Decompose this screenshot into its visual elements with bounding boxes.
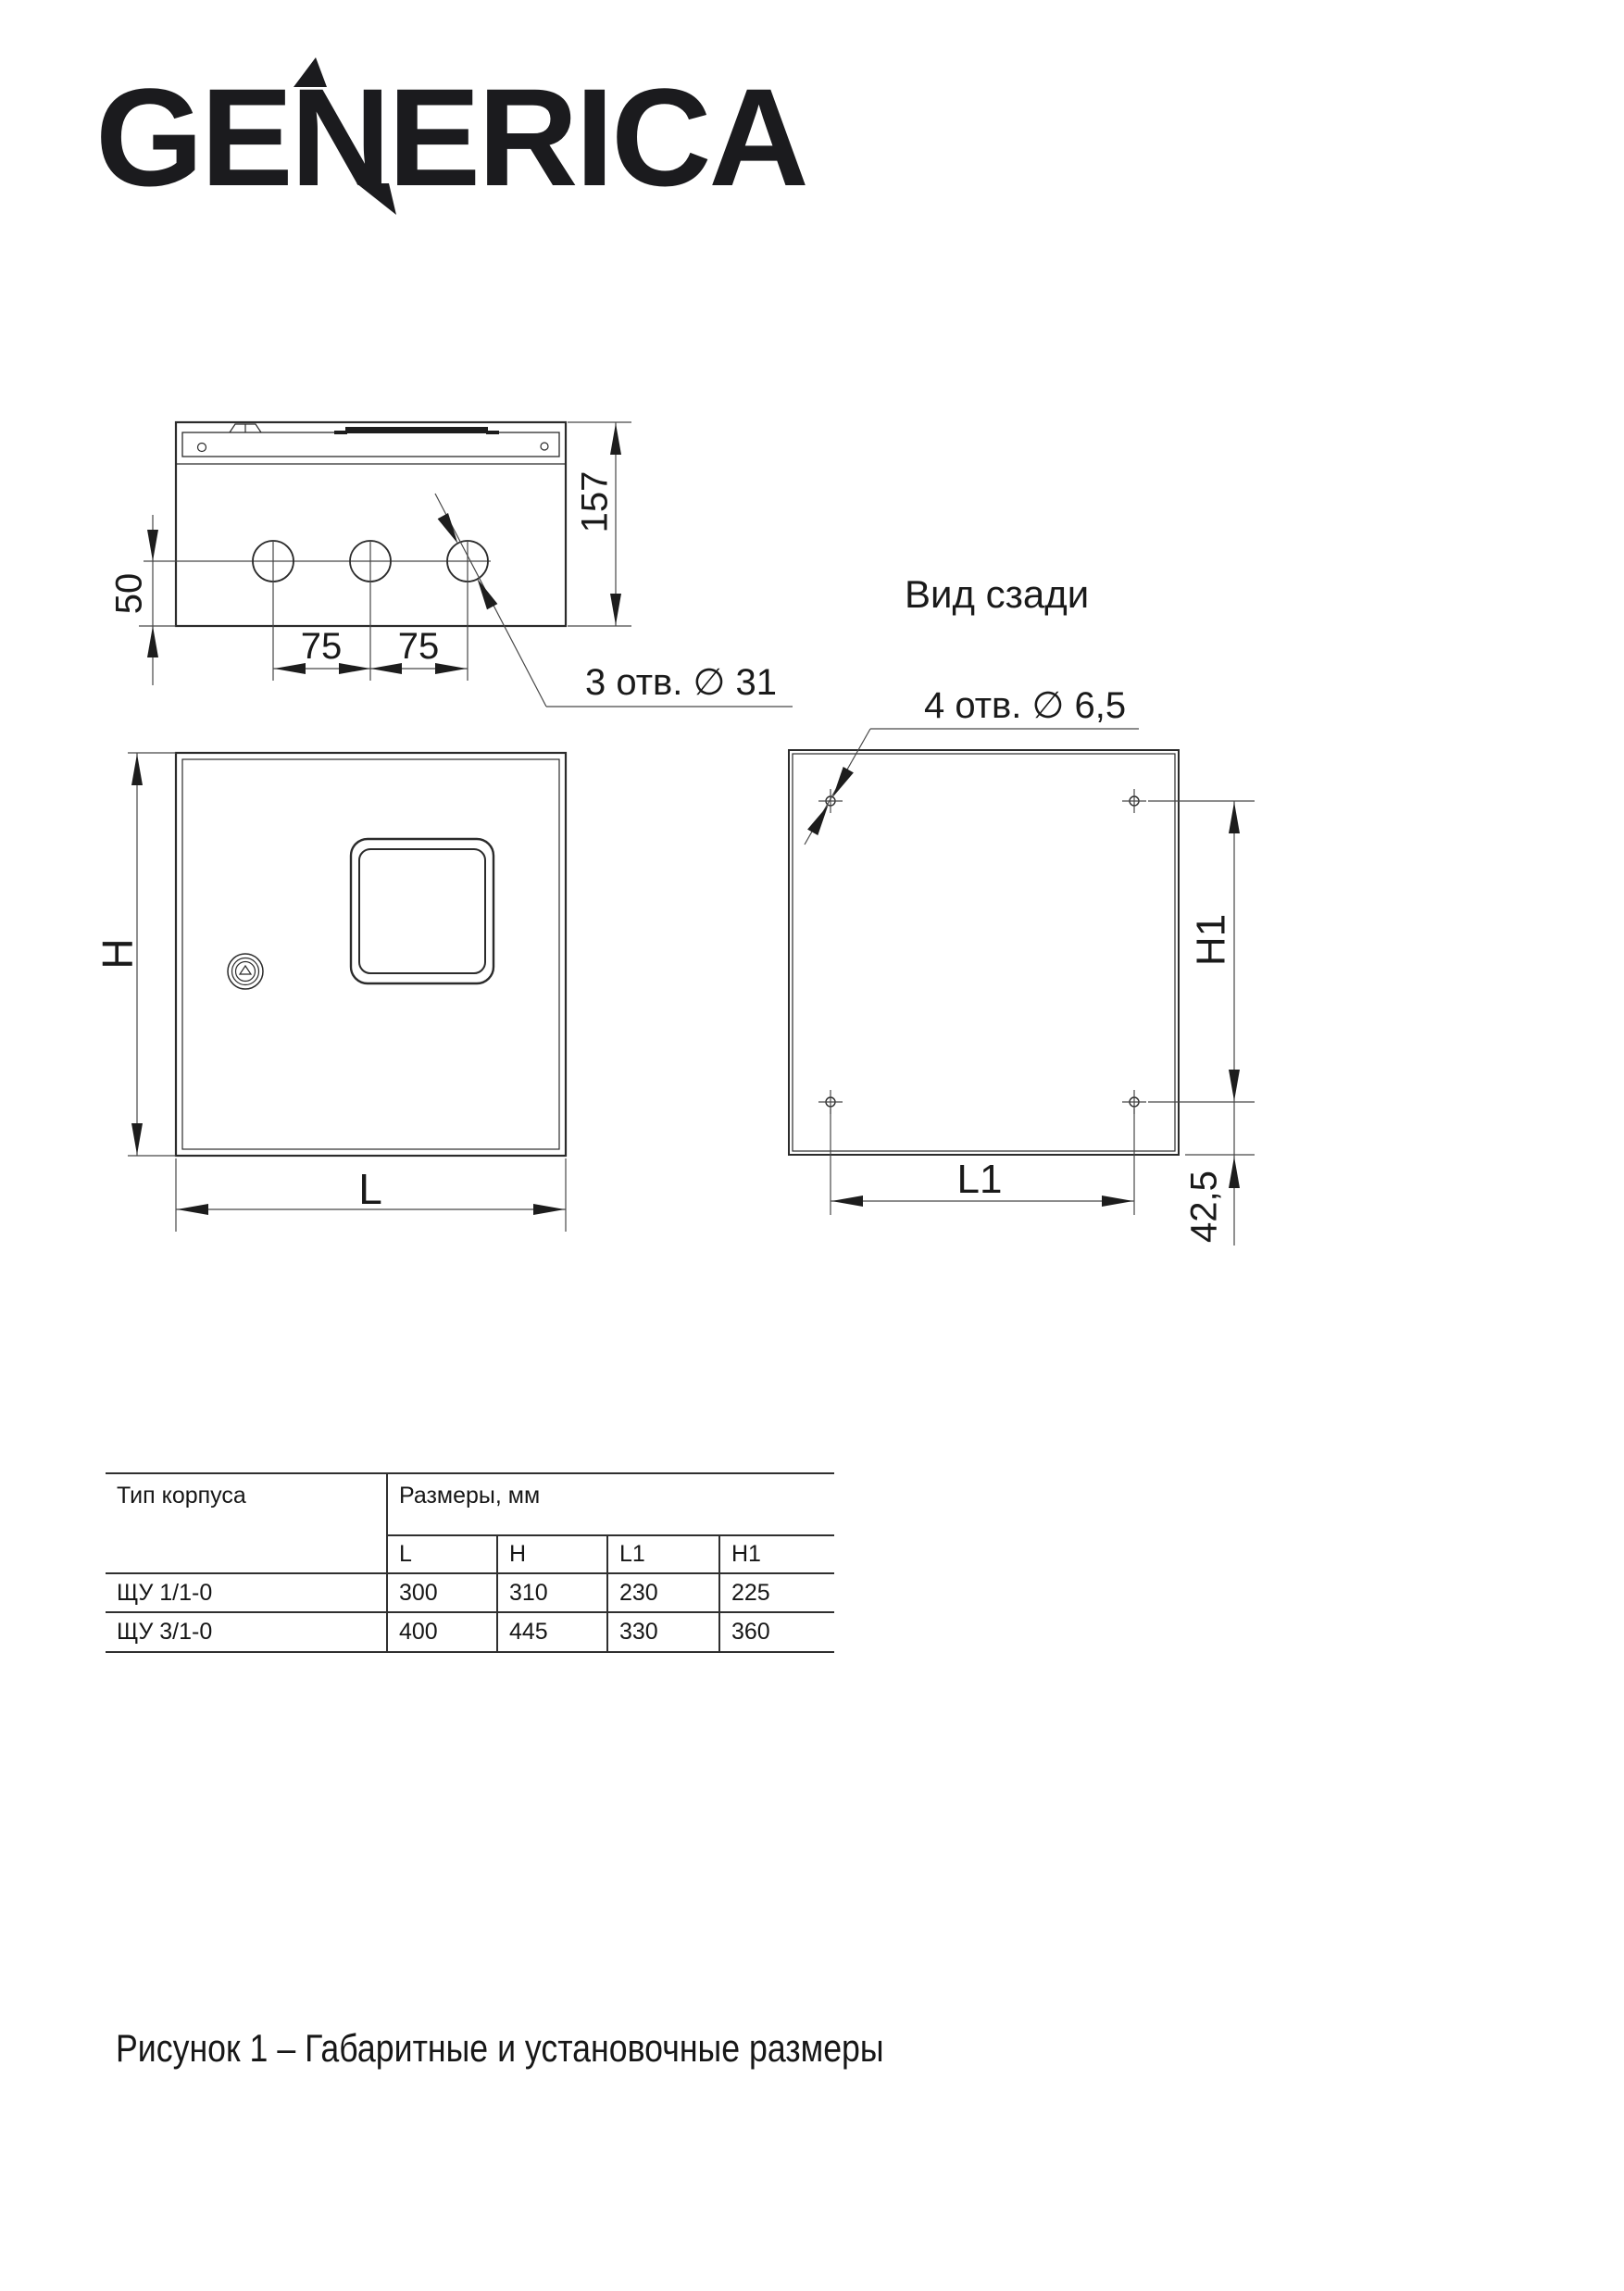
- arrow-right-icon: [533, 1204, 565, 1215]
- cell-L: 300: [387, 1573, 497, 1612]
- cell-L: 400: [387, 1612, 497, 1652]
- dim-L1-label: L1: [957, 1157, 1003, 1202]
- figure-caption: Рисунок 1 – Габаритные и установочные ра…: [116, 2029, 884, 2068]
- arrow-right-icon: [435, 663, 467, 674]
- rear-view-title: Вид сзади: [905, 572, 1089, 616]
- table-header-dims: Размеры, мм: [387, 1473, 834, 1535]
- technical-drawing: 50 75 75 157: [0, 0, 1624, 2291]
- handle-icon: [345, 427, 488, 433]
- front-view: H L: [94, 753, 566, 1232]
- cell-H: 310: [497, 1573, 607, 1612]
- arrow-right-icon: [339, 663, 370, 674]
- cell-H1: 225: [719, 1573, 834, 1612]
- dim-157: 157: [568, 422, 631, 626]
- arrow-up-icon: [131, 754, 143, 785]
- arrow-down-icon: [147, 530, 158, 561]
- table-subheader-L: L: [387, 1535, 497, 1573]
- cell-H: 445: [497, 1612, 607, 1652]
- arrow-icon: [833, 767, 854, 797]
- dim-L: L: [176, 1158, 566, 1232]
- dim-H1-label: H1: [1189, 914, 1234, 966]
- arrow-down-icon: [610, 594, 621, 625]
- handle-end-right: [486, 431, 499, 434]
- table-subheader-L1: L1: [607, 1535, 719, 1573]
- rear-view-body-inner: [793, 754, 1175, 1151]
- table-header-type: Тип корпуса: [106, 1473, 387, 1573]
- handle-end-left: [334, 431, 347, 434]
- dim-H-label: H: [94, 938, 142, 969]
- top-holes-label: 3 отв. ∅ 31: [585, 662, 777, 703]
- arrow-icon: [438, 513, 458, 544]
- mounting-hole: [1122, 789, 1146, 813]
- dim-75-right-label: 75: [398, 626, 440, 667]
- dim-157-label: 157: [575, 471, 616, 533]
- cell-H1: 360: [719, 1612, 834, 1652]
- dim-50: 50: [109, 515, 176, 685]
- rear-holes-label: 4 отв. ∅ 6,5: [924, 685, 1126, 726]
- dim-L-label: L: [358, 1165, 382, 1213]
- cell-type: ЩУ 3/1-0: [106, 1612, 387, 1652]
- hinge-icon: [230, 424, 261, 432]
- cell-L1: 230: [607, 1573, 719, 1612]
- arrow-up-icon: [147, 626, 158, 657]
- lock-ring: [236, 962, 256, 982]
- arrow-icon: [807, 805, 828, 835]
- cell-type: ЩУ 1/1-0: [106, 1573, 387, 1612]
- dimensions-table: Тип корпуса Размеры, мм L H L1 H1 ЩУ 1/1…: [106, 1472, 834, 1653]
- meter-window-outer: [351, 839, 493, 983]
- meter-window-inner: [359, 849, 485, 973]
- table-subheader-H: H: [497, 1535, 607, 1573]
- rear-view: Вид сзади: [789, 572, 1255, 1246]
- arrow-left-icon: [177, 1204, 208, 1215]
- arrow-up-icon: [610, 423, 621, 455]
- front-view-door: [182, 759, 559, 1149]
- arrow-left-icon: [831, 1196, 863, 1207]
- screw-icon: [541, 443, 548, 450]
- lock-icon: [228, 954, 263, 989]
- rear-view-body: [789, 750, 1179, 1155]
- arrow-down-icon: [1229, 1070, 1240, 1101]
- dim-50-label: 50: [109, 573, 150, 615]
- table-subheader-H1: H1: [719, 1535, 834, 1573]
- arrow-down-icon: [131, 1123, 143, 1155]
- cell-L1: 330: [607, 1612, 719, 1652]
- lock-keyhole: [240, 966, 251, 974]
- dim-42-5-label: 42,5: [1184, 1171, 1225, 1243]
- front-view-body: [176, 753, 566, 1156]
- top-view-door-strip: [182, 432, 559, 457]
- arrow-icon: [478, 579, 498, 609]
- document-page: GENERICA: [0, 0, 1624, 2291]
- dim-H: H: [94, 753, 176, 1156]
- dim-75-left-label: 75: [301, 626, 343, 667]
- rear-holes-callout: 4 отв. ∅ 6,5: [805, 685, 1139, 845]
- dim-H1: H1 42,5: [1148, 801, 1255, 1246]
- mounting-hole: [818, 789, 843, 813]
- arrow-right-icon: [1102, 1196, 1133, 1207]
- table-row: ЩУ 3/1-0 400 445 330 360: [106, 1612, 834, 1652]
- arrow-up-icon: [1229, 1157, 1240, 1188]
- screw-icon: [198, 444, 206, 452]
- table-row: ЩУ 1/1-0 300 310 230 225: [106, 1573, 834, 1612]
- dim-L1: L1: [831, 1108, 1134, 1215]
- arrow-up-icon: [1229, 802, 1240, 833]
- top-view: 50 75 75 157: [109, 422, 793, 707]
- mounting-holes: [818, 789, 1146, 1114]
